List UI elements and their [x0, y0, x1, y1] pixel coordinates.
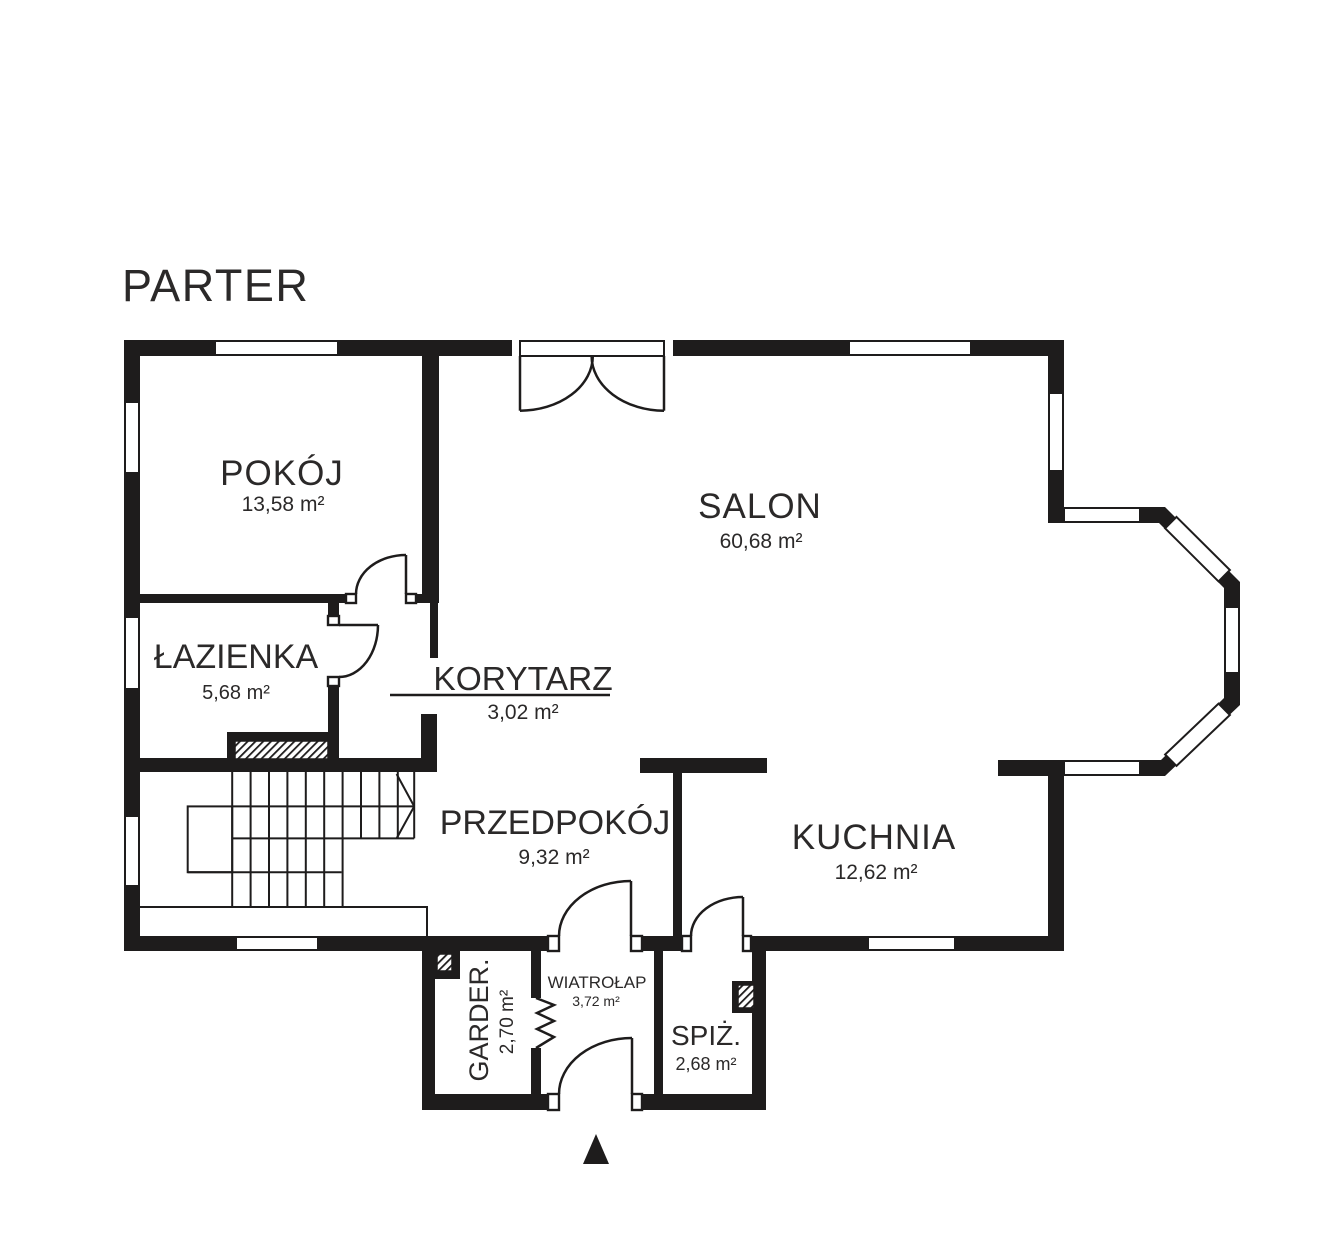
svg-text:KORYTARZ: KORYTARZ	[433, 661, 612, 698]
svg-text:WIATROŁAP: WIATROŁAP	[548, 973, 647, 992]
svg-text:SALON: SALON	[698, 487, 822, 526]
svg-text:GARDER.: GARDER.	[464, 958, 494, 1081]
svg-text:12,62 m²: 12,62 m²	[835, 861, 918, 884]
svg-text:PARTER: PARTER	[122, 260, 309, 311]
svg-text:POKÓJ: POKÓJ	[220, 454, 344, 493]
svg-text:PRZEDPOKÓJ: PRZEDPOKÓJ	[440, 804, 670, 842]
svg-text:SPIŻ.: SPIŻ.	[671, 1020, 741, 1051]
svg-text:5,68 m²: 5,68 m²	[202, 682, 270, 704]
svg-text:ŁAZIENKA: ŁAZIENKA	[154, 638, 319, 676]
svg-text:3,02 m²: 3,02 m²	[487, 701, 558, 724]
svg-text:2,70 m²: 2,70 m²	[497, 990, 518, 1054]
svg-text:13,58 m²: 13,58 m²	[242, 493, 325, 516]
svg-text:60,68 m²: 60,68 m²	[720, 530, 803, 553]
svg-text:3,72 m²: 3,72 m²	[572, 993, 620, 1009]
svg-text:2,68 m²: 2,68 m²	[675, 1054, 736, 1074]
svg-text:9,32 m²: 9,32 m²	[518, 846, 589, 869]
svg-text:KUCHNIA: KUCHNIA	[792, 818, 957, 857]
